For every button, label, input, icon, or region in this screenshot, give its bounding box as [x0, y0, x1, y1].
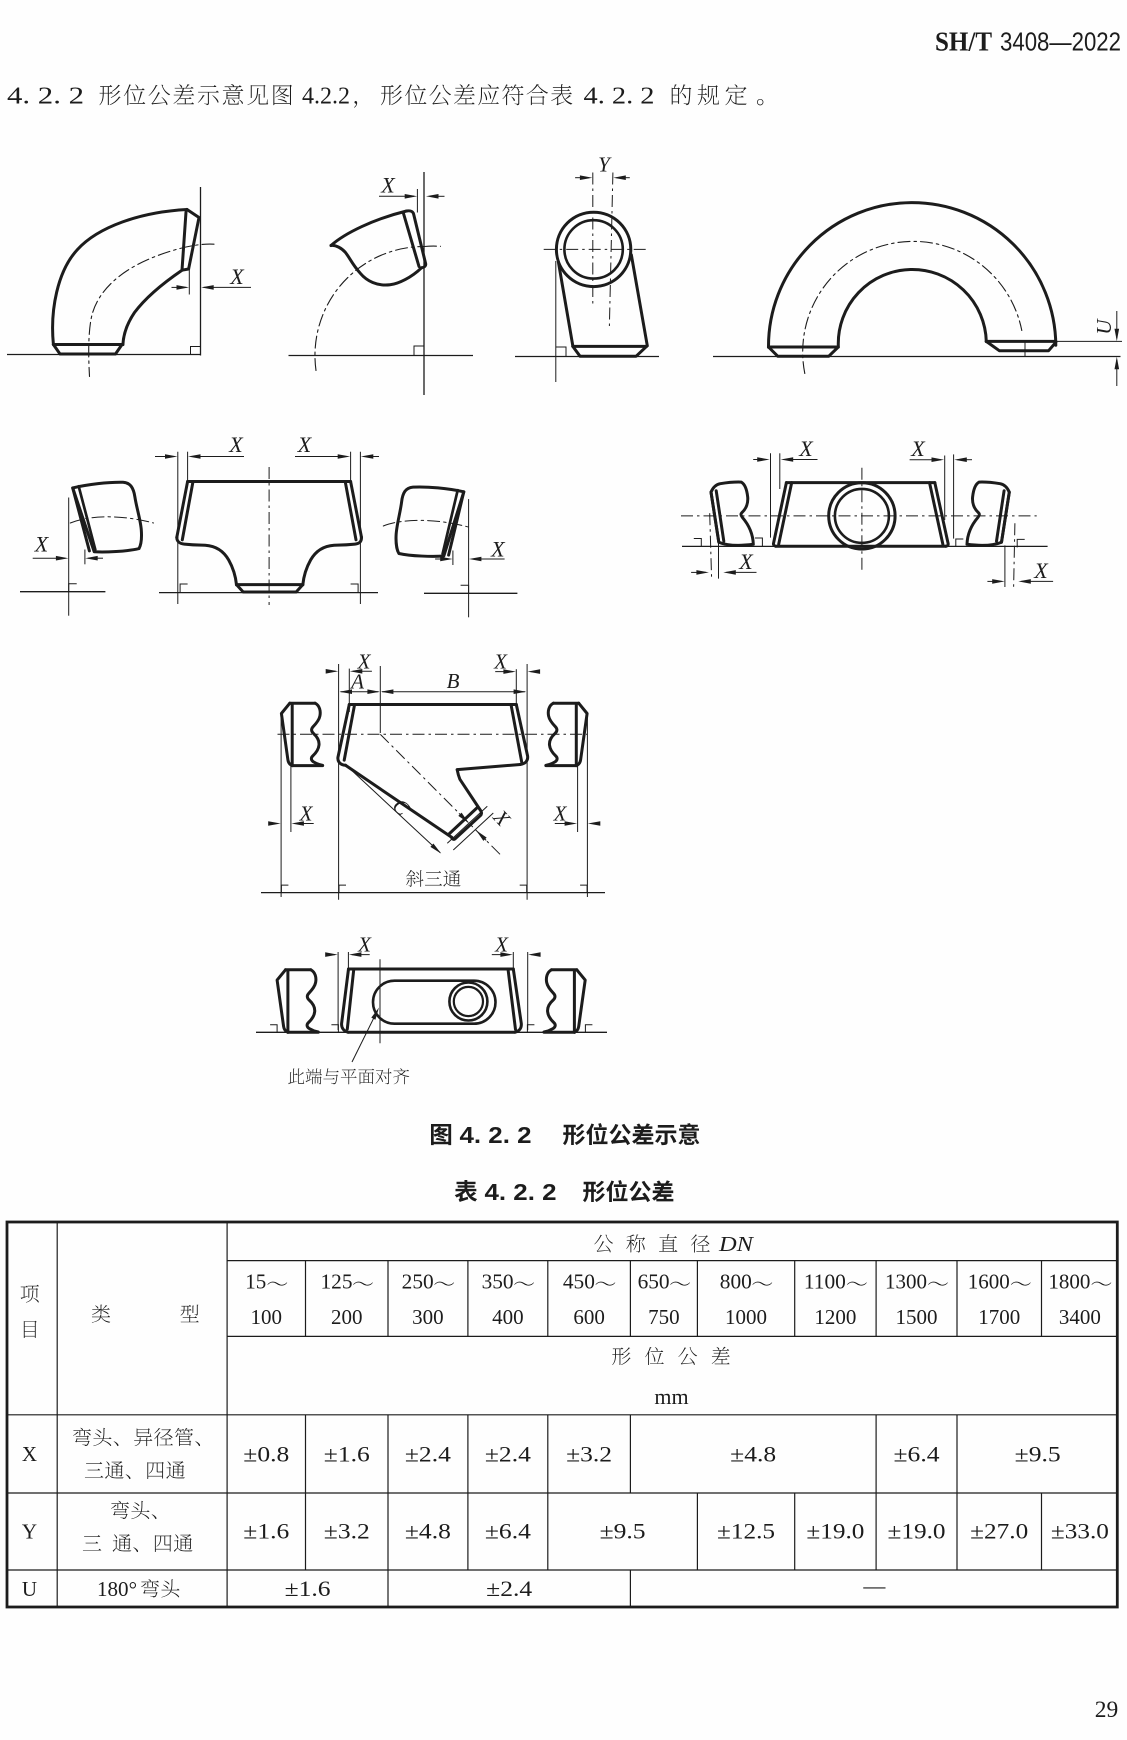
svg-text:X: X: [1033, 558, 1049, 583]
svg-text:15: 15: [245, 1270, 266, 1294]
svg-text:350: 350: [482, 1270, 514, 1294]
svg-text:X: X: [738, 549, 754, 574]
svg-text:800: 800: [720, 1270, 752, 1294]
svg-text:200: 200: [331, 1305, 363, 1329]
svg-text:100: 100: [251, 1305, 283, 1329]
svg-text:1100: 1100: [804, 1270, 846, 1294]
svg-text:X: X: [493, 650, 508, 674]
svg-text:±12.5: ±12.5: [717, 1519, 775, 1544]
svg-text:±2.4: ±2.4: [405, 1442, 451, 1467]
svg-text:±1.6: ±1.6: [243, 1519, 289, 1544]
svg-text:450: 450: [563, 1270, 595, 1294]
svg-text:±19.0: ±19.0: [888, 1519, 946, 1544]
svg-text:4.2.2: 4.2.2: [302, 84, 350, 110]
svg-text:X: X: [798, 436, 814, 461]
svg-text:Y: Y: [22, 1520, 37, 1544]
svg-text:X: X: [357, 933, 372, 957]
svg-text:X: X: [228, 432, 244, 457]
svg-text:1000: 1000: [725, 1305, 767, 1329]
svg-text:3408—2022: 3408—2022: [1000, 27, 1121, 57]
svg-text:1700: 1700: [978, 1305, 1020, 1329]
svg-text:mm: mm: [654, 1384, 688, 1409]
svg-text:X: X: [380, 173, 396, 198]
svg-text:1800: 1800: [1048, 1270, 1090, 1294]
svg-text:1500: 1500: [896, 1305, 938, 1329]
svg-text:±27.0: ±27.0: [970, 1519, 1028, 1544]
svg-text:±4.8: ±4.8: [405, 1519, 451, 1544]
svg-text:±3.2: ±3.2: [324, 1519, 370, 1544]
svg-text:X: X: [299, 802, 314, 826]
svg-text:180°: 180°: [97, 1577, 137, 1601]
svg-text:—: —: [862, 1573, 886, 1598]
svg-text:4. 2. 2: 4. 2. 2: [584, 84, 655, 110]
svg-text:±0.8: ±0.8: [243, 1442, 289, 1467]
svg-text:X: X: [229, 264, 245, 289]
svg-text:SH/T: SH/T: [935, 27, 992, 57]
svg-text:B: B: [447, 669, 460, 693]
svg-text:DN: DN: [718, 1232, 755, 1256]
svg-text:250: 250: [402, 1270, 434, 1294]
svg-text:4. 2. 2: 4. 2. 2: [7, 84, 84, 110]
svg-text:±33.0: ±33.0: [1051, 1519, 1109, 1544]
svg-text:±2.4: ±2.4: [486, 1576, 532, 1601]
svg-text:±9.5: ±9.5: [1015, 1442, 1061, 1467]
svg-text:X: X: [553, 802, 568, 826]
svg-text:X: X: [22, 1442, 37, 1466]
svg-text:U: U: [22, 1577, 37, 1601]
svg-text:1200: 1200: [814, 1305, 856, 1329]
svg-text:600: 600: [573, 1305, 605, 1329]
svg-text:±6.4: ±6.4: [485, 1519, 531, 1544]
svg-text:±2.4: ±2.4: [485, 1442, 531, 1467]
svg-text:1300: 1300: [885, 1270, 927, 1294]
svg-text:±4.8: ±4.8: [730, 1442, 776, 1467]
svg-text:±6.4: ±6.4: [894, 1442, 940, 1467]
svg-text:750: 750: [648, 1305, 680, 1329]
svg-text:400: 400: [492, 1305, 524, 1329]
svg-text:±19.0: ±19.0: [806, 1519, 864, 1544]
svg-text:4. 2. 2: 4. 2. 2: [460, 1122, 532, 1148]
svg-text:X: X: [297, 432, 313, 457]
svg-text:X: X: [910, 436, 926, 461]
svg-text:29: 29: [1095, 1697, 1119, 1723]
svg-text:125: 125: [321, 1270, 353, 1294]
svg-text:X: X: [490, 537, 506, 562]
svg-text:4. 2. 2: 4. 2. 2: [485, 1179, 557, 1205]
svg-text:3400: 3400: [1059, 1305, 1101, 1329]
svg-text:±3.2: ±3.2: [566, 1442, 612, 1467]
svg-text:X: X: [34, 532, 50, 557]
svg-text:A: A: [349, 670, 364, 694]
svg-text:±9.5: ±9.5: [600, 1519, 646, 1544]
svg-text:±1.6: ±1.6: [285, 1576, 331, 1601]
svg-text:1600: 1600: [968, 1270, 1010, 1294]
svg-text:300: 300: [412, 1305, 444, 1329]
svg-text:650: 650: [638, 1270, 670, 1294]
svg-text:U: U: [1092, 318, 1116, 335]
svg-text:X: X: [494, 933, 509, 957]
svg-text:±1.6: ±1.6: [324, 1442, 370, 1467]
